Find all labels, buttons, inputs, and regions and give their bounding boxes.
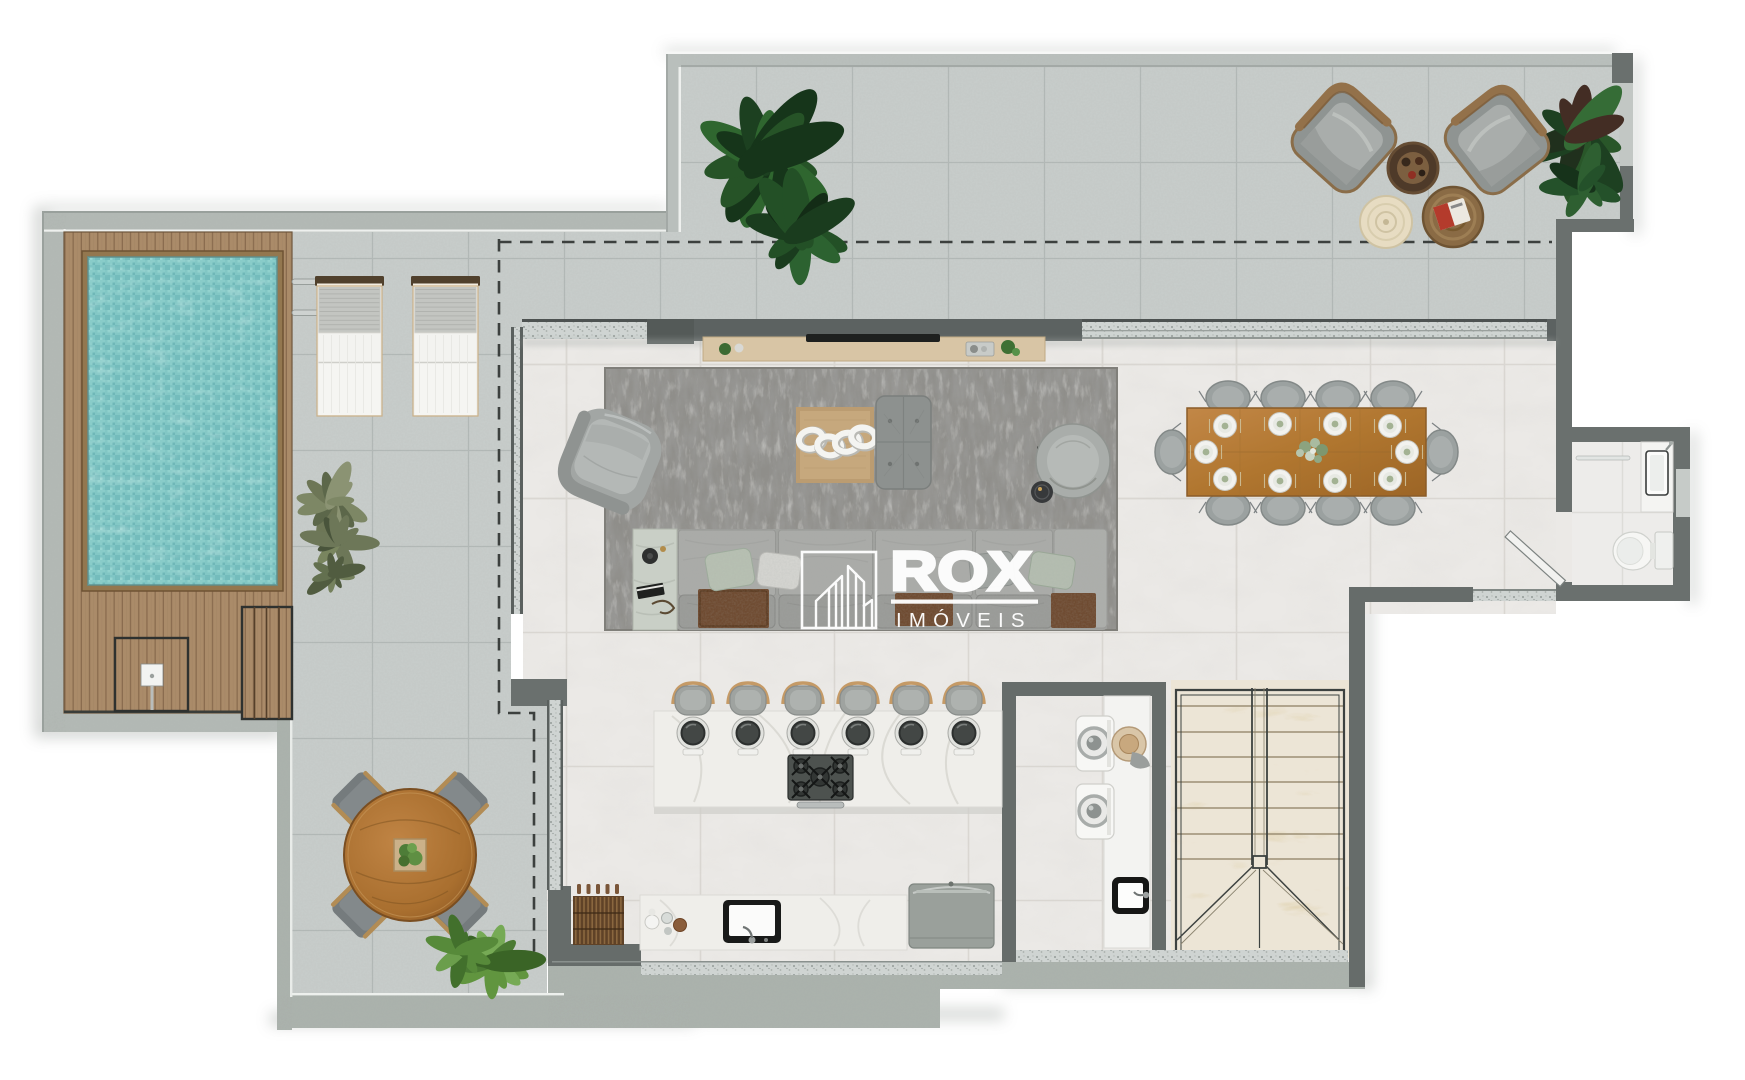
svg-text:IMÓVEIS: IMÓVEIS [896, 609, 1032, 632]
svg-text:ROX: ROX [891, 540, 1032, 602]
